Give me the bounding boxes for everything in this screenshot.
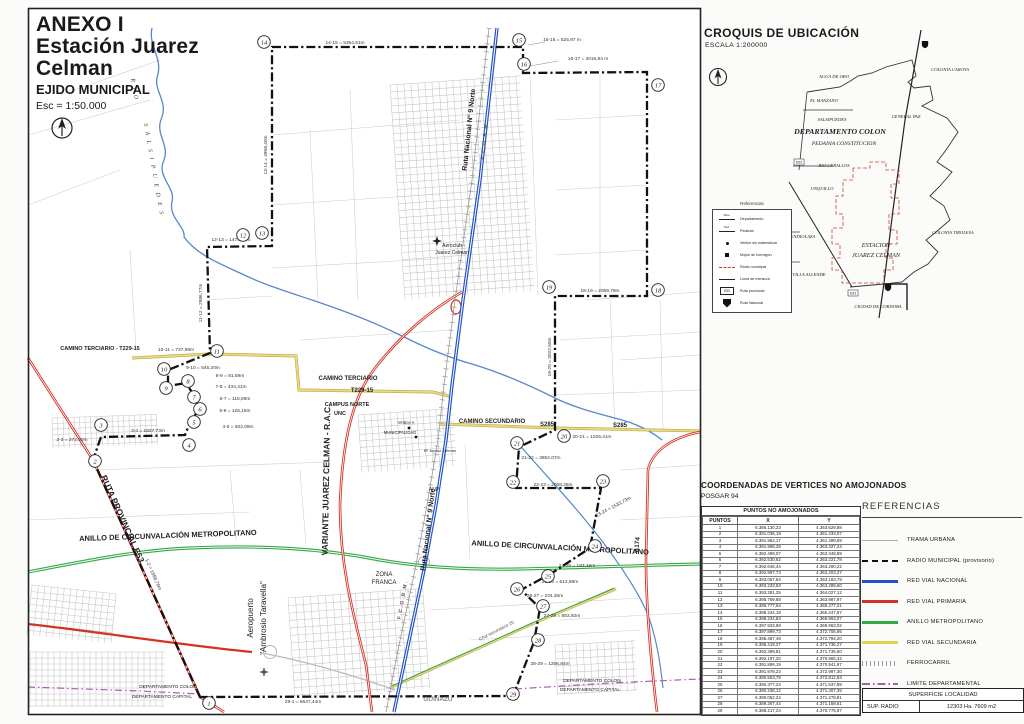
vertex-number: 24	[592, 543, 599, 550]
distance-label: 27-28 = 853,92m	[544, 613, 580, 619]
croquis-legend-label: Ruta provincial	[740, 289, 764, 293]
map-label: Bº Juarez Celman	[424, 448, 456, 453]
vertex-marker: 21	[511, 437, 524, 450]
map-label: CAMINO TERCIARIO - T229-15	[60, 346, 139, 352]
croquis-legend-item: Vertice sin materializar	[713, 238, 791, 248]
vertex-marker: 1	[203, 697, 216, 710]
boundary-symbol-icon: Ped.	[718, 227, 736, 236]
vertex-marker: 7	[188, 391, 201, 404]
red-vial-secundaria-swatch-icon	[862, 641, 898, 644]
anillo-metropolitano-swatch-icon	[862, 621, 898, 624]
vertex-number: 12	[240, 232, 247, 239]
map-label: S285	[540, 422, 555, 428]
distance-label: 4-5 = 502,09m	[222, 424, 253, 430]
title-block: ANEXO I Estación Juarez Celman EJIDO MUN…	[36, 14, 266, 112]
croquis-label: ESTACION	[861, 242, 891, 249]
croquis-north-arrow-icon	[710, 69, 727, 86]
distance-label: 7-8 = 434,31m	[215, 384, 246, 390]
distance-label: 10-11 = 737,99m	[158, 347, 194, 353]
croquis-label: VILLA ALLENDE	[792, 272, 825, 277]
legend-item: RED VIAL NACIONAL	[862, 571, 1022, 592]
croquis-legend-item: Dpto.Departamento	[713, 214, 791, 224]
limite-departamental-swatch-icon	[862, 683, 898, 685]
vertex-marker: 11	[211, 345, 224, 358]
vertex-marker: 15	[513, 34, 526, 47]
superficie-label: SUP. RADIO	[863, 701, 920, 712]
coords-column-header: Y	[799, 517, 860, 525]
distance-label: 13-14 = 4958,40m	[263, 135, 269, 174]
map-label: A174	[633, 536, 641, 552]
vertex-marker: 29	[507, 688, 520, 701]
vertex-marker: 2	[89, 455, 102, 468]
legend-item: FERROCARRIL	[862, 653, 1022, 674]
vertex-number: 26	[514, 586, 521, 593]
vertex-number: 22	[510, 479, 517, 486]
coords-column-header: X	[738, 517, 799, 525]
references-title: REFERENCIAS	[862, 501, 1022, 517]
red-vial-nacional-swatch-icon	[862, 580, 898, 583]
vertex-marker: 10	[158, 363, 171, 376]
coords-table-header: PUNTOSXY	[703, 517, 860, 525]
map-label: S285	[613, 423, 628, 429]
legend-item: ANILLO METROPOLITANO	[862, 612, 1022, 633]
map-label: DEPARTAMENTO COLON	[139, 684, 197, 690]
legend-item: TRAMA URBANA	[862, 530, 1022, 551]
map-sheet: E53 E53 AGUA DE OROEL MANZANOSALSIPUEDES…	[0, 0, 1024, 724]
distance-label: 22-23 = 2068,25m	[533, 482, 572, 488]
vertex-marker: 27	[537, 600, 550, 613]
croquis-legend-item: Mojón de hormigón	[713, 250, 791, 260]
croquis-label: DEPARTAMENTO COLON	[793, 127, 886, 136]
coords-table: PUNTOS NO AMOJONADOS PUNTOSXY 16.386.130…	[701, 506, 861, 716]
references-divider	[862, 517, 1022, 518]
croquis-legend-label: Pedania	[740, 229, 754, 233]
vertex-marker: 25	[542, 570, 555, 583]
coords-column-header: PUNTOS	[703, 517, 738, 525]
superficie-title: SUPERFICIE LOCALIDAD	[863, 689, 1023, 701]
legend-label: RED VIAL SECUNDARIA	[907, 640, 977, 646]
map-label: T229-15	[351, 388, 374, 394]
map-label: GUIÑAZU	[423, 694, 453, 703]
map-label: Vértice A	[398, 420, 415, 425]
radio-municipal-line-icon	[718, 263, 736, 272]
vertex-marker: 20	[558, 430, 571, 443]
legend-label: RED VIAL PRIMARIA	[907, 599, 966, 605]
vertice-b-marker	[415, 436, 418, 439]
croquis-label: COLONIA CAROYA	[931, 67, 969, 72]
vertex-marker: 18	[652, 284, 665, 297]
croquis-label: COLONIA TIROLESA	[932, 230, 974, 235]
coords-cell: 6.388.217,24	[738, 708, 799, 715]
distance-label: 28-29 = 1256,84m	[530, 661, 569, 667]
croquis-legend-label: Mojón de hormigón	[740, 253, 772, 257]
croquis-label: RIO CEBALLOS	[817, 163, 850, 168]
svg-text:E53: E53	[796, 161, 802, 165]
map-label: DEPARTAMENTO COLON	[563, 678, 621, 684]
title-anexo: ANEXO I	[36, 14, 266, 36]
legend-label: FERROCARRIL	[907, 660, 951, 666]
vertex-marker: 5	[188, 416, 201, 429]
vertex-number: 11	[214, 348, 220, 355]
croquis-label: GENERAL PAZ	[892, 114, 921, 119]
distance-label: 15-16 = 525,97 m	[543, 37, 581, 43]
map-label: ANP	[429, 487, 440, 493]
distance-label: 24-25 = 183,15m	[559, 563, 595, 569]
coords-cell: 29	[703, 708, 738, 715]
references-panel: REFERENCIAS TRAMA URBANARADIO MUNICIPAL …	[862, 501, 1022, 694]
vertex-number: 19	[546, 284, 553, 291]
croquis-scale: ESCALA 1:200000	[705, 42, 768, 49]
croquis-labels: AGUA DE OROEL MANZANOSALSIPUEDESDEPARTAM…	[786, 67, 974, 309]
croquis-legend-item: Línea de mensura	[713, 274, 791, 284]
croquis-legend: Dpto.DepartamentoPed.PedaniaVertice sin …	[712, 209, 792, 313]
vertex-marker: 17	[652, 79, 665, 92]
croquis-legend-label: Ruta Nacional	[740, 301, 763, 305]
vertex-marker: 26	[511, 583, 524, 596]
coords-datum: POSGAR 94	[701, 493, 738, 500]
vertex-marker: 23	[597, 475, 610, 488]
legend-item: RED VIAL PRIMARIA	[862, 592, 1022, 613]
croquis-route9	[879, 30, 921, 318]
mojon-icon	[718, 251, 736, 260]
croquis-label: UNQUILLO	[811, 186, 835, 191]
map-label: FRANCA	[372, 580, 397, 586]
distance-label: 5-6 = 126,15m	[219, 408, 250, 414]
distance-label: 2-3 = 372,50m	[56, 437, 87, 443]
vertex-marker: 16	[518, 58, 531, 71]
ruta-nacional-shield-icon	[718, 299, 736, 308]
map-label: Juarez Celman	[435, 250, 469, 256]
map-label: CAMINO SECUNDARIO	[459, 419, 526, 425]
vertex-marker: 9	[160, 382, 173, 395]
vertex-marker: 28	[532, 634, 545, 647]
croquis-legend-title: Referencias	[712, 201, 792, 206]
distance-label: 18-19 = 2059,79m	[580, 288, 619, 294]
vertex-number: 23	[600, 478, 607, 485]
croquis-legend-label: Vertice sin materializar	[740, 241, 777, 245]
croquis-legend-label: Departamento	[740, 217, 763, 221]
croquis-legend-label: Línea de mensura	[740, 277, 770, 281]
vertex-number: 29	[510, 691, 517, 698]
radio-municipal-provisorio--swatch-icon	[862, 560, 898, 562]
croquis-label: PEDANIA CONSTITUCION	[811, 141, 877, 147]
map-label: Aeropuerto	[246, 598, 255, 638]
legend-label: LIMITE DEPARTAMENTAL	[907, 681, 981, 687]
distance-label: 8-9 = 81,59m	[216, 373, 244, 379]
croquis-title: CROQUIS DE UBICACIÓN	[704, 26, 859, 40]
distance-label: 6-7 = 115,89m	[220, 396, 251, 402]
distance-label: 3-4 = 1827,73m	[131, 428, 165, 434]
distance-label: 14-15 = 5354,61m	[325, 40, 364, 46]
table-row: 296.388.217,244.370.775,87	[703, 708, 860, 715]
coords-heading: COORDENADAS DE VERTICES NO AMOJONADOS	[701, 481, 906, 490]
distance-label: 29-1 = 6647,44m	[285, 699, 321, 705]
superficie-table: SUPERFICIE LOCALIDAD SUP. RADIO 12303 Ha…	[862, 688, 1024, 713]
ruta-provincial-badge-icon: E53	[718, 287, 736, 296]
legend-label: RADIO MUNICIPAL (provisorio)	[907, 558, 994, 564]
route-shield-icon	[922, 41, 928, 48]
title-escala: Esc = 1:50.000	[36, 101, 266, 112]
croquis-label: EL MANZANO	[809, 98, 839, 103]
legend-item: RADIO MUNICIPAL (provisorio)	[862, 551, 1022, 572]
croquis-label: AGUA DE ORO	[818, 74, 850, 79]
map-label: UNC	[334, 411, 346, 417]
croquis-radio-municipal	[832, 162, 899, 283]
vertex-number: 16	[521, 61, 528, 68]
title-ejido: EJIDO MUNICIPAL	[36, 83, 266, 97]
croquis-legend-label: Radio municipal	[740, 265, 766, 269]
vertex-number: 25	[545, 573, 552, 580]
croquis-legend-item: E53Ruta provincial	[713, 286, 791, 296]
distance-label: 26-27 = 234,30m	[527, 593, 563, 599]
croquis-legend-item: Ruta Nacional	[713, 298, 791, 308]
vertex-number: 20	[561, 433, 568, 440]
vertex-marker: 12	[237, 229, 250, 242]
vertex-number: 18	[655, 287, 662, 294]
distance-label: 16-17 = 3016,84 m	[568, 56, 608, 62]
map-label: DEPARTAMENTO CAPITAL	[132, 694, 192, 700]
croquis-label: JUAREZ CELMAN	[852, 252, 901, 259]
vertex-marker: 3	[95, 419, 108, 432]
vertex-number: 28	[535, 637, 542, 644]
vertex-number: 10	[161, 366, 168, 373]
coords-cell: 4.370.775,87	[799, 708, 860, 715]
distance-label: 19-20 = 3022,50m	[547, 337, 553, 376]
superficie-value: 12303 Ha. 7609 m2	[920, 701, 1023, 712]
vertex-marker: 24	[589, 540, 602, 553]
map-label: "Ambrosio Taravella"	[259, 581, 268, 655]
svg-text:E53: E53	[850, 292, 856, 296]
red-vial-primaria-swatch-icon	[862, 600, 898, 603]
mensura-line-icon	[718, 275, 736, 284]
vertex-number: 27	[540, 603, 547, 610]
vertex-number: 17	[655, 82, 662, 89]
trama-urbana-swatch-icon	[862, 540, 898, 541]
legend-label: RED VIAL NACIONAL	[907, 578, 968, 584]
vertex-marker: 8	[182, 375, 195, 388]
vertice-a-marker	[408, 427, 411, 430]
title-estacion: Estación Juarez Celman	[36, 36, 266, 80]
croquis-legend-item: Radio municipal	[713, 262, 791, 272]
ferrocarril-swatch-icon	[862, 661, 898, 666]
route-shield-icon	[885, 284, 891, 291]
vertex-number: 1	[207, 700, 210, 707]
boundary-symbol-icon: Dpto.	[718, 215, 736, 224]
map-label: ZONA	[376, 572, 393, 578]
coords-table-title: PUNTOS NO AMOJONADOS	[702, 507, 860, 516]
croquis-legend-item: Ped.Pedania	[713, 226, 791, 236]
croquis-label: SALSIPUEDES	[818, 117, 848, 122]
legend-label: TRAMA URBANA	[907, 537, 955, 543]
distance-label: 21-22 = 3852,07m	[521, 455, 560, 461]
vertex-number: 15	[516, 37, 523, 44]
vertex-marker: 22	[507, 476, 520, 489]
map-label: CAMINO TERCIARIO	[319, 376, 378, 382]
distance-label: 20-21 = 1026,41m	[572, 434, 611, 440]
legend-label: ANILLO METROPOLITANO	[907, 619, 983, 625]
vertex-number: 13	[259, 230, 266, 237]
vertex-dot-icon	[718, 239, 736, 248]
map-label: MUNICIPALIDAD	[384, 430, 417, 435]
map-label: DEPARTAMENTO CAPITAL	[560, 687, 620, 693]
vertex-marker: 4	[183, 439, 196, 452]
vertex-marker: 13	[256, 227, 269, 240]
distance-label: 9-10 = 545,20m	[186, 365, 220, 371]
vertex-marker: 19	[543, 281, 556, 294]
map-label: Aeroclub	[442, 243, 462, 249]
vertex-number: 21	[514, 440, 521, 447]
distance-label: 11-12 = 2586,77m	[198, 284, 204, 323]
legend-item: RED VIAL SECUNDARIA	[862, 633, 1022, 654]
vertex-marker: 6	[194, 403, 207, 416]
croquis-label: CIUDAD DE CORDOBA	[854, 304, 901, 309]
